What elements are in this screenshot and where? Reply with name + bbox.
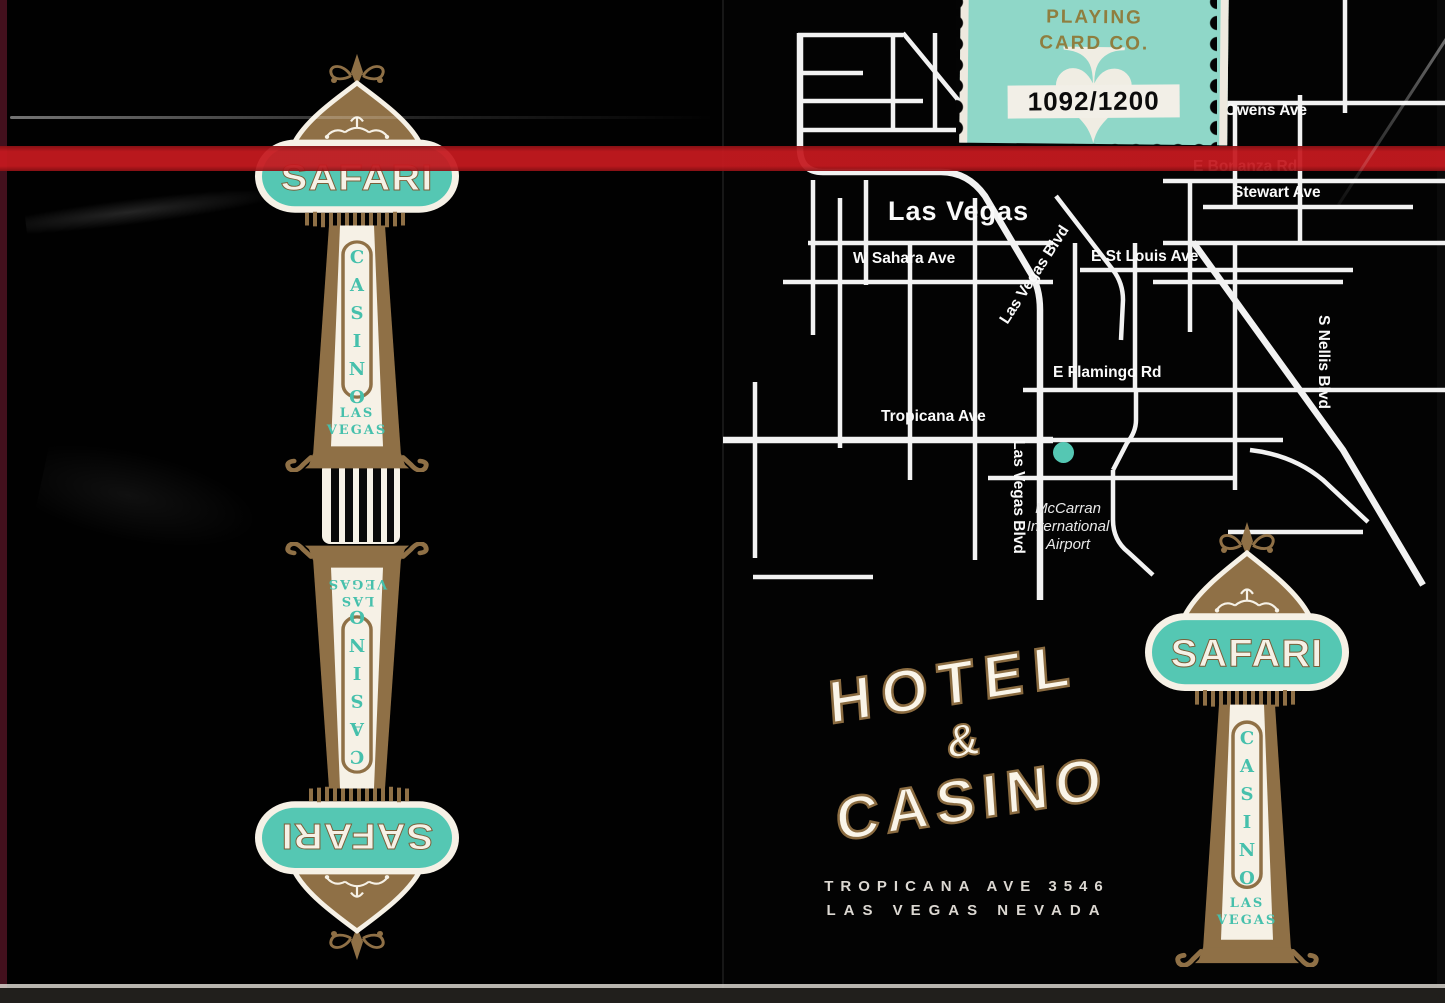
- sign-city-line2: VEGAS: [1137, 912, 1357, 929]
- road-label-st-louis: E St Louis Ave: [1091, 248, 1198, 266]
- sign-venue-text: CASINO: [1237, 728, 1258, 889]
- sign-city-text: LAS VEGAS: [1137, 895, 1357, 929]
- airport-label: McCarran International Airport: [1008, 500, 1128, 554]
- casino-location-marker: [1053, 442, 1074, 463]
- sign-name-text: SAFARI: [281, 816, 434, 857]
- safari-sign-bottom-right: SAFARI CASINO LAS VEGAS: [1137, 520, 1357, 967]
- airport-label-line3: Airport: [1008, 536, 1128, 554]
- sign-city-line1: LAS: [247, 592, 467, 609]
- seal-brand-line2: PLAYING: [968, 4, 1220, 33]
- sign-base: [1195, 948, 1299, 964]
- city-label: Las Vegas: [888, 196, 1029, 227]
- seal-brand-line3: CARD CO.: [968, 30, 1220, 59]
- seal-brand-text: GEMINI PLAYING CARD CO.: [968, 0, 1221, 58]
- safari-sign-bottom-left-mirrored: SAFARI CASINO LAS VEGAS: [247, 542, 467, 962]
- address-line1: TROPICANA AVE 3546: [793, 878, 1141, 895]
- sign-middle-grille: [322, 462, 400, 544]
- sign-city-line1: LAS: [1137, 895, 1357, 912]
- sign-base: [305, 546, 409, 561]
- road-label-stewart: Stewart Ave: [1233, 184, 1321, 202]
- road-label-sahara: W Sahara Ave: [853, 250, 955, 268]
- address-block: TROPICANA AVE 3546 LAS VEGAS NEVADA: [793, 878, 1141, 919]
- seal-serial-number: 1092/1200: [1008, 84, 1180, 118]
- airport-label-line1: McCarran: [1008, 500, 1128, 518]
- road-label-flamingo: E Flamingo Rd: [1053, 364, 1162, 382]
- road-label-nellis: S Nellis Blvd: [1314, 302, 1332, 422]
- numbered-seal-sticker: GEMINI PLAYING CARD CO. ♠ 1092/1200: [959, 0, 1229, 145]
- card-box-photo: E Owens Ave E Bonanza Rd Stewart Ave Las…: [0, 0, 1445, 1003]
- sign-city-line2: VEGAS: [247, 575, 467, 592]
- road-label-tropicana: Tropicana Ave: [881, 408, 986, 426]
- sign-name-text: SAFARI: [1171, 632, 1324, 675]
- grille-bars: [328, 464, 394, 542]
- sign-city-text: LAS VEGAS: [247, 405, 467, 439]
- sign-city-line2: VEGAS: [247, 422, 467, 439]
- sign-venue-text: CASINO: [347, 616, 368, 767]
- red-wrap-band: [0, 146, 1445, 171]
- bottom-surface: [0, 988, 1445, 1003]
- address-line2: LAS VEGAS NEVADA: [793, 902, 1141, 919]
- sign-city-text: LAS VEGAS: [247, 575, 467, 609]
- table-edge-highlight: [0, 984, 1445, 988]
- sign-base: [305, 454, 409, 469]
- airport-label-line2: International: [1008, 518, 1128, 536]
- sign-venue-text: CASINO: [347, 247, 368, 398]
- safari-sign-top-left: SAFARI CASINO LAS VEGAS: [247, 52, 467, 472]
- sign-city-line1: LAS: [247, 405, 467, 422]
